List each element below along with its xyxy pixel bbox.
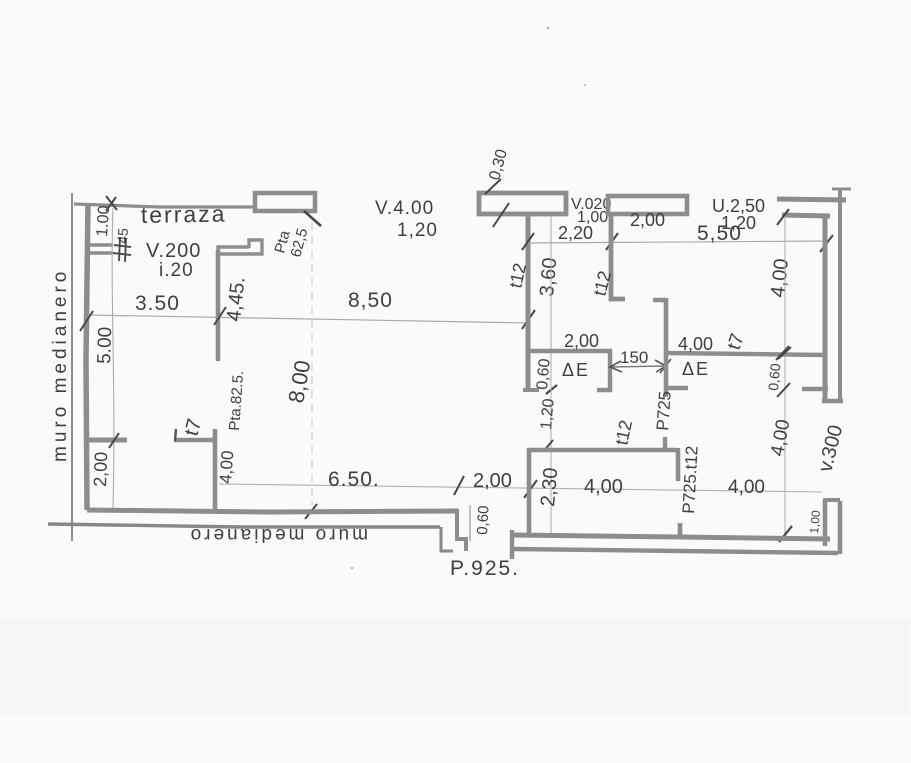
svg-text:2,00: 2,00 (90, 451, 111, 487)
svg-text:0,60: 0,60 (534, 358, 554, 391)
svg-text:0,60: 0,60 (474, 505, 493, 535)
svg-text:4,00: 4,00 (216, 450, 237, 484)
svg-text:2,00: 2,00 (473, 470, 512, 492)
svg-text:4,00: 4,00 (678, 334, 713, 354)
svg-text:P725: P725 (653, 390, 675, 431)
svg-text:i.20: i.20 (159, 260, 194, 281)
svg-text:1,00: 1,00 (807, 509, 823, 534)
svg-text:2,30: 2,30 (537, 467, 562, 508)
svg-text:4,00: 4,00 (584, 476, 623, 498)
svg-text:P.925.: P.925. (450, 557, 520, 580)
svg-text:0,60: 0,60 (765, 363, 783, 392)
svg-text:4,00: 4,00 (728, 477, 765, 498)
svg-text:ΔE: ΔE (682, 359, 710, 379)
svg-text:V.200: V.200 (146, 240, 201, 262)
svg-text:1,20: 1,20 (538, 398, 558, 431)
svg-text:1,20: 1,20 (721, 213, 756, 233)
svg-text:P725.t12: P725.t12 (679, 445, 702, 514)
svg-text:2,00: 2,00 (564, 331, 599, 351)
svg-text:muro medianero: muro medianero (188, 524, 368, 545)
svg-text:2,20: 2,20 (558, 223, 593, 243)
svg-text:8,50: 8,50 (348, 289, 393, 312)
svg-text:3,60: 3,60 (536, 257, 561, 298)
svg-text:V.4.00: V.4.00 (375, 198, 434, 219)
svg-text:terraza: terraza (141, 201, 227, 228)
svg-text:2,00: 2,00 (630, 210, 665, 230)
svg-text:4,00: 4,00 (767, 257, 793, 298)
svg-text:1,20: 1,20 (397, 220, 438, 241)
svg-text:150: 150 (620, 348, 648, 367)
svg-text:45: 45 (114, 227, 131, 244)
svg-text:1.00: 1.00 (94, 205, 113, 237)
svg-text:ΔE: ΔE (562, 360, 590, 380)
svg-text:4,45.: 4,45. (223, 276, 250, 323)
svg-text:muro medianero: muro medianero (50, 268, 71, 462)
svg-text:6.50.: 6.50. (328, 468, 380, 491)
svg-text:3.50: 3.50 (135, 292, 180, 315)
